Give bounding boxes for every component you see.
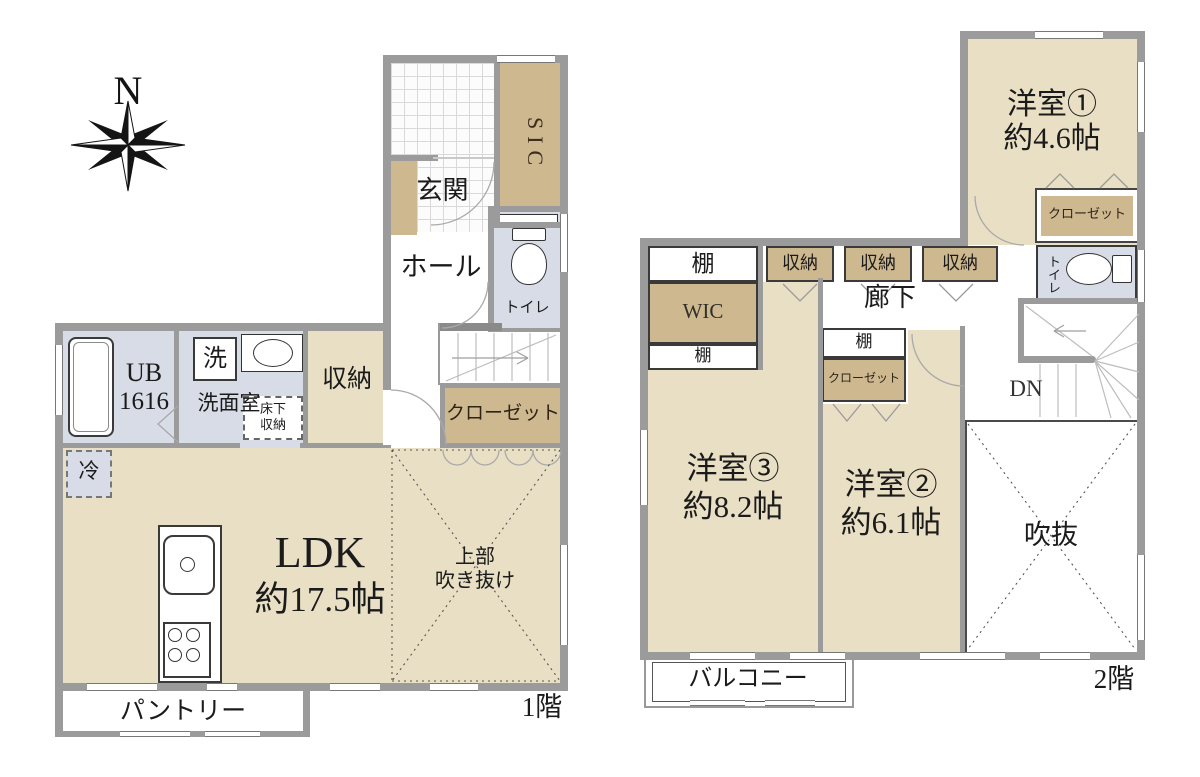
pantry-label: パントリー xyxy=(73,698,293,726)
void2-label: 吹抜 xyxy=(1018,520,1084,550)
closet-door-arc xyxy=(505,450,533,465)
closet-door-arc xyxy=(533,450,561,465)
bedroom1-label-line2: 約4.6帖 xyxy=(987,122,1117,156)
door-arc-hall-stair xyxy=(442,282,488,328)
closet-door-arc xyxy=(471,450,499,465)
closet1f-label: クローゼット xyxy=(446,403,558,424)
ldk-label-line1: LDK xyxy=(238,528,402,577)
storage2f-label-a: 収納 xyxy=(768,253,832,273)
underfloor-label-line2: 収納 xyxy=(243,418,303,433)
door-arc-hall-ldk xyxy=(391,390,446,445)
toilet2-label: トイレ xyxy=(1042,249,1060,299)
void1-label-line1: 上部 xyxy=(415,546,535,568)
bath-label-line1: UB xyxy=(112,358,176,387)
storage1f-label: 収納 xyxy=(310,366,384,394)
wic-label: WIC xyxy=(650,300,756,324)
door-arc-bedroom2 xyxy=(912,334,964,386)
bath-label-line2: 1616 xyxy=(110,388,178,416)
bedroom1-closet-label: クローゼット xyxy=(1041,207,1133,222)
entrance-label: 玄関 xyxy=(395,176,490,205)
shelf-bottom-label: 棚 xyxy=(650,346,756,365)
sic-label: SIC xyxy=(513,85,547,205)
shelf-room2-label: 棚 xyxy=(824,332,904,351)
stairs1-lines xyxy=(446,333,556,381)
void1-label-line2: 吹き抜け xyxy=(415,570,535,592)
balcony-label: バルコニー xyxy=(678,666,818,693)
bedroom1-label-line1: 洋室① xyxy=(992,88,1112,122)
toilet1-label: トイレ xyxy=(494,300,560,317)
fridge-label: 冷 xyxy=(66,460,112,484)
compass-icon: N xyxy=(71,68,185,191)
bedroom3-label-line2: 約8.2帖 xyxy=(668,490,798,525)
door-arc-bedroom1 xyxy=(975,196,1024,245)
shelf-top-label: 棚 xyxy=(650,251,756,277)
storage2f-label-b: 収納 xyxy=(846,253,910,273)
closet-door-arc xyxy=(443,450,471,465)
bedroom2-label-line2: 約6.1帖 xyxy=(826,506,956,541)
bedroom2-closet-label: クローゼット xyxy=(822,372,906,385)
floor2-label: 2階 xyxy=(1082,664,1146,694)
bedroom3-label-line1: 洋室③ xyxy=(673,452,793,487)
floorplan-canvas: N xyxy=(0,0,1200,777)
hallway-label: 廊下 xyxy=(855,283,925,312)
storage2f-label-c: 収納 xyxy=(924,253,996,273)
ldk-label-line2: 約17.5帖 xyxy=(220,580,420,619)
dn-label: DN xyxy=(1002,376,1050,402)
underfloor-label-line1: 床下 xyxy=(243,402,303,417)
floor1-label: 1階 xyxy=(510,692,574,722)
bedroom2-label-line1: 洋室② xyxy=(831,468,951,503)
washer-label: 洗 xyxy=(193,346,237,373)
hall-label: ホール xyxy=(395,252,487,282)
